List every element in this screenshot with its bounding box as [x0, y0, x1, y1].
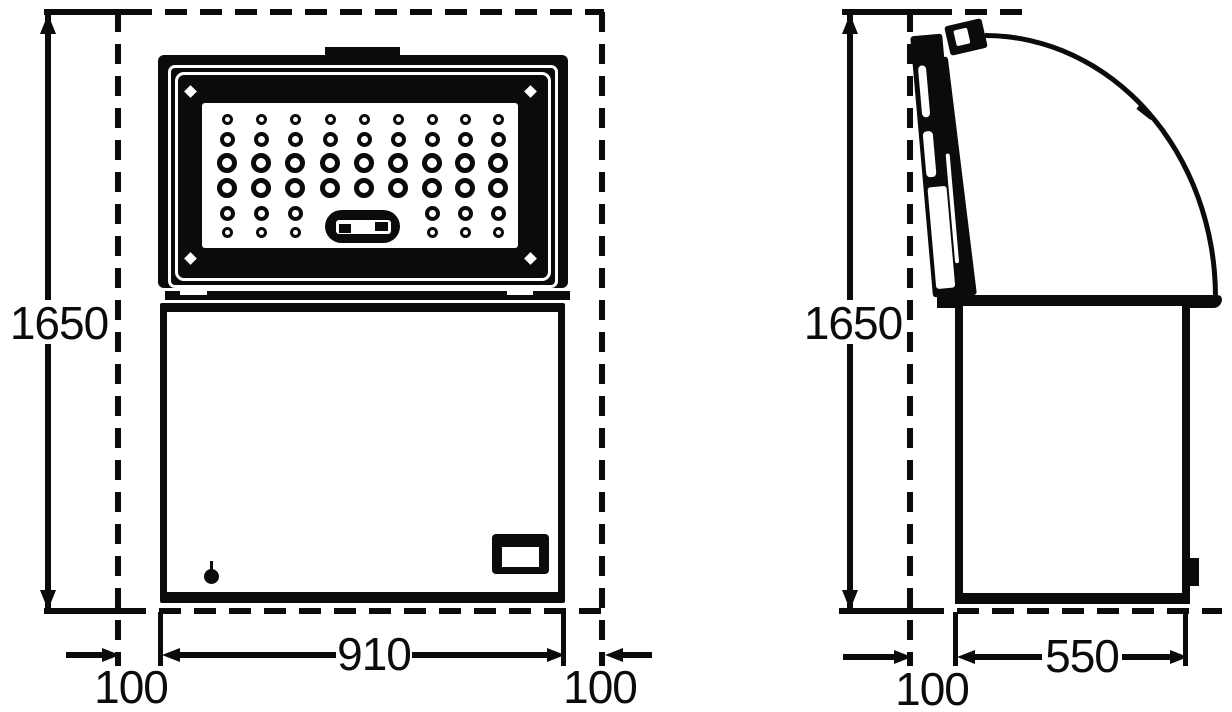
side-depth-dim-line-right: [1122, 654, 1170, 660]
front-width-arrow-left-icon: [162, 648, 180, 662]
front-left-clearance-dashed-line: [115, 12, 121, 666]
side-margin-dim-line: [843, 654, 894, 660]
seal-slit-left: [180, 291, 207, 295]
side-lid-sliver-middle: [923, 131, 937, 178]
side-floor-dashed-line: [922, 608, 1222, 614]
side-lid-sliver-upper: [918, 65, 931, 117]
side-margin-arrow-icon: [894, 650, 912, 664]
lid-handle-tab-right: [375, 222, 388, 231]
side-depth-dim-line-left: [975, 654, 1042, 660]
seal-slit-right: [507, 291, 533, 295]
side-rear-clearance-dashed-line: [907, 12, 913, 666]
front-height-arrow-up-icon: [40, 14, 56, 34]
brand-badge-window: [502, 547, 539, 567]
side-height-arrow-up-icon: [842, 14, 858, 34]
front-top-clearance-dashed-line: [130, 9, 604, 15]
front-left-margin-arrow-icon: [102, 648, 120, 662]
front-bottom-extent-line: [44, 608, 132, 614]
side-lid-cap-slit: [953, 28, 970, 47]
side-height-arrow-down-icon: [842, 590, 858, 610]
side-depth-label: 550: [1042, 633, 1122, 679]
side-height-label: 1650: [800, 300, 906, 344]
side-depth-arrow-left-icon: [957, 650, 975, 664]
side-hinge-notch: [1190, 558, 1199, 586]
technical-drawing-canvas: 1650 910: [0, 0, 1232, 712]
front-width-dim-line-right: [412, 652, 547, 658]
side-lid-top-cap: [944, 18, 988, 56]
front-floor-dashed-line: [124, 608, 608, 614]
lid-swing-arc: [985, 33, 1218, 297]
side-depth-arrow-right-icon: [1170, 650, 1188, 664]
front-right-margin-dim-line: [623, 652, 652, 658]
front-left-margin-dim-line: [66, 652, 104, 658]
front-height-label: 1650: [6, 300, 112, 344]
front-width-dim-line-left: [180, 652, 336, 658]
front-width-label: 910: [334, 631, 414, 677]
lock-icon: [204, 569, 219, 584]
front-height-arrow-down-icon: [40, 590, 56, 610]
side-top-clearance-dashed-line: [930, 9, 1028, 15]
cabinet-body-side: [955, 306, 1190, 604]
front-right-clearance-dashed-line: [599, 12, 605, 666]
side-margin-label: 100: [891, 666, 973, 712]
front-right-margin-arrow-icon: [605, 648, 623, 662]
front-right-margin-label: 100: [559, 664, 641, 710]
front-width-arrow-right-icon: [547, 648, 565, 662]
lid-handle-tab-left: [339, 224, 351, 233]
front-left-margin-label: 100: [90, 664, 172, 710]
